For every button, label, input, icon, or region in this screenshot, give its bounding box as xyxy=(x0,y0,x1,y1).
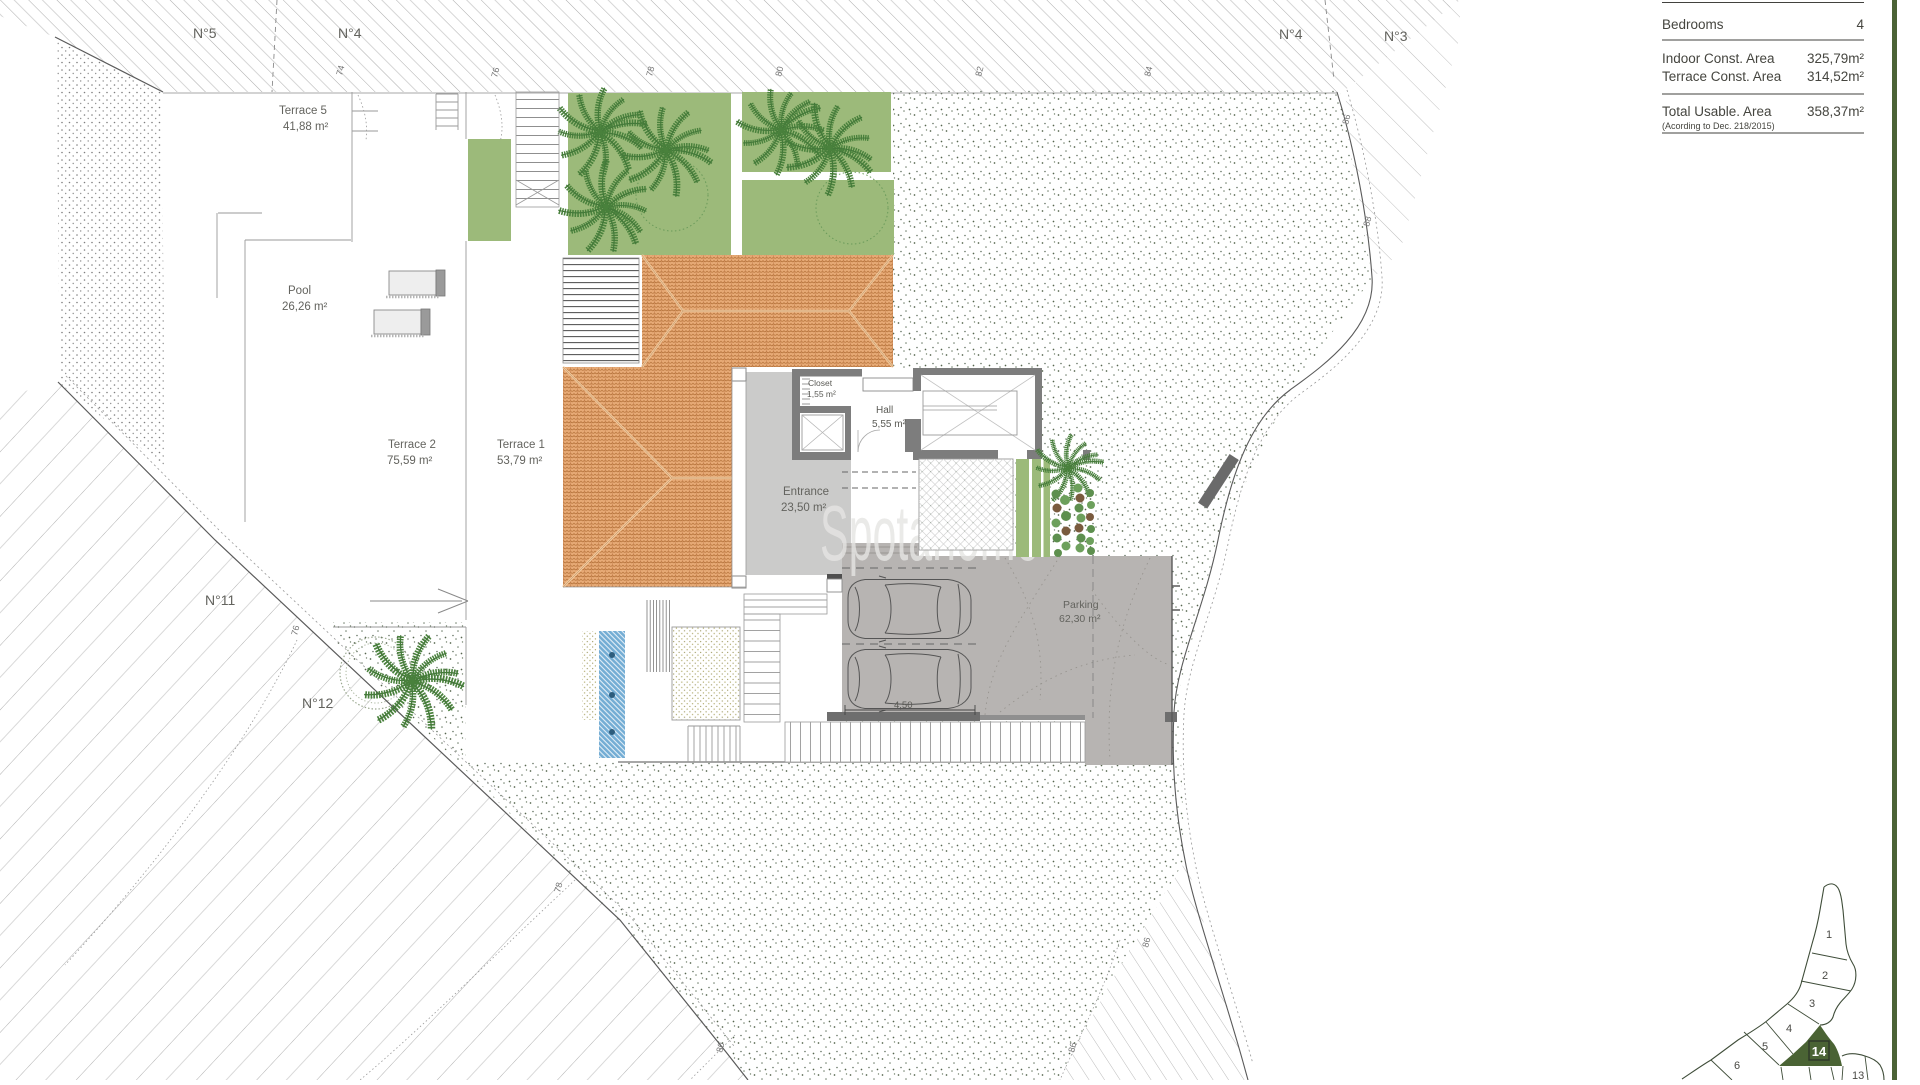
svg-text:Terrace 2: Terrace 2 xyxy=(388,439,436,451)
svg-text:Terrace 5: Terrace 5 xyxy=(279,105,327,117)
svg-text:14: 14 xyxy=(1812,1044,1827,1059)
svg-text:62,30 m²: 62,30 m² xyxy=(1059,613,1101,625)
svg-text:1,55 m²: 1,55 m² xyxy=(807,389,836,399)
svg-text:23,50 m²: 23,50 m² xyxy=(781,502,827,514)
svg-text:6: 6 xyxy=(1734,1060,1740,1072)
svg-text:3: 3 xyxy=(1809,998,1815,1010)
svg-text:Total Usable. Area: Total Usable. Area xyxy=(1662,104,1772,119)
svg-text:Indoor Const. Area: Indoor Const. Area xyxy=(1662,51,1775,66)
svg-text:1: 1 xyxy=(1826,929,1832,941)
svg-text:Closet: Closet xyxy=(808,378,833,388)
svg-text:358,37m²: 358,37m² xyxy=(1807,104,1865,119)
svg-text:N°4: N°4 xyxy=(1279,26,1303,42)
svg-text:Parking: Parking xyxy=(1063,599,1099,611)
svg-text:Pool: Pool xyxy=(288,285,311,297)
svg-text:314,52m²: 314,52m² xyxy=(1807,69,1865,84)
svg-text:4,50: 4,50 xyxy=(894,700,913,711)
svg-text:4: 4 xyxy=(1856,17,1864,32)
svg-text:41,88 m²: 41,88 m² xyxy=(283,121,329,133)
svg-text:5,55 m²: 5,55 m² xyxy=(872,419,907,430)
svg-text:N°11: N°11 xyxy=(205,592,235,608)
svg-text:Terrace 1: Terrace 1 xyxy=(497,439,545,451)
svg-text:N°4: N°4 xyxy=(338,25,362,41)
svg-text:N°5: N°5 xyxy=(193,25,217,41)
svg-text:N°12: N°12 xyxy=(302,695,333,711)
svg-text:Hall: Hall xyxy=(876,405,893,416)
svg-text:N°3: N°3 xyxy=(1384,28,1408,44)
svg-text:13: 13 xyxy=(1852,1070,1864,1080)
svg-text:75,59 m²: 75,59 m² xyxy=(387,455,433,467)
svg-text:(Acording to Dec. 218/2015): (Acording to Dec. 218/2015) xyxy=(1662,121,1775,131)
svg-text:Bedrooms: Bedrooms xyxy=(1662,17,1724,32)
svg-text:325,79m²: 325,79m² xyxy=(1807,51,1865,66)
svg-text:26,26 m²: 26,26 m² xyxy=(282,301,328,313)
svg-text:53,79 m²: 53,79 m² xyxy=(497,455,543,467)
svg-text:Entrance: Entrance xyxy=(783,486,829,498)
svg-text:4: 4 xyxy=(1786,1023,1792,1035)
svg-text:2: 2 xyxy=(1822,970,1828,982)
svg-text:5: 5 xyxy=(1762,1041,1768,1053)
svg-text:Terrace Const. Area: Terrace Const. Area xyxy=(1662,69,1782,84)
